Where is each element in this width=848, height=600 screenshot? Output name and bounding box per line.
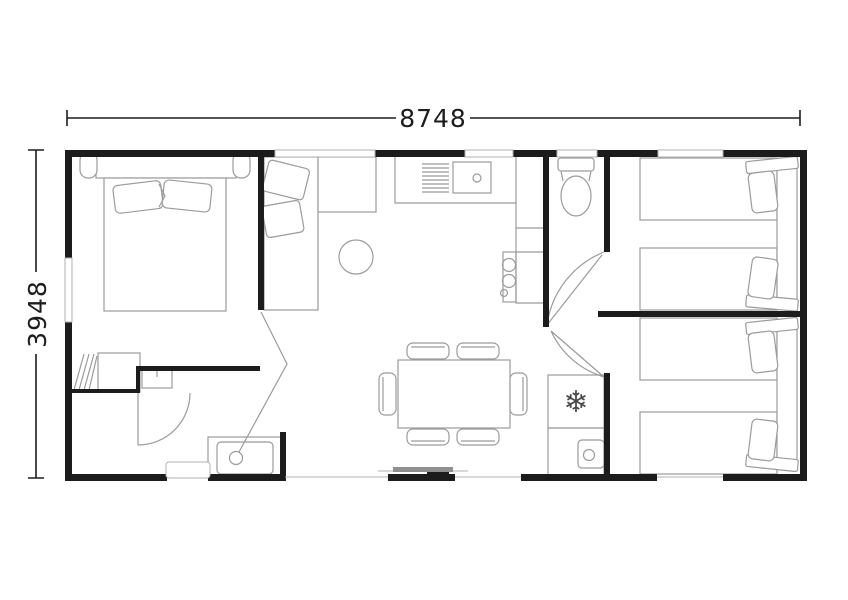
toilet-tank (558, 158, 594, 171)
wc-door (547, 252, 604, 325)
dining-set (379, 343, 527, 445)
sofa-cushion (262, 200, 305, 238)
snowflake-icon: ❄ (563, 385, 588, 420)
floor-plan-drawing: ❄ (0, 0, 848, 600)
vanity-nook (74, 353, 140, 392)
vanity-counter (98, 353, 140, 392)
wall-bathroom-north (140, 366, 260, 371)
bathroom-door-arc (138, 393, 190, 445)
wall-top (597, 150, 658, 157)
bed-side-panel (777, 325, 797, 465)
window (275, 150, 375, 157)
wall-bathroom-nook (72, 389, 140, 393)
wall-bottom (521, 474, 657, 481)
sofa-corner (262, 157, 376, 310)
chair (407, 343, 449, 359)
master-bedroom (74, 152, 250, 392)
height-dimension-label: 3948 (23, 280, 52, 348)
chair (457, 429, 499, 445)
bathroom (138, 368, 281, 478)
wall-top (375, 150, 465, 157)
kitchen-counter (395, 157, 543, 303)
fridge-column: ❄ (548, 375, 604, 478)
kitchen-sink (453, 162, 491, 193)
kitchen (395, 157, 543, 303)
bedroom-door (551, 331, 604, 377)
wall-bottom (723, 474, 807, 481)
sink-drain (473, 174, 481, 182)
pillow (748, 331, 779, 374)
sliding-door-leaf (393, 467, 453, 472)
burner (503, 259, 516, 272)
window (658, 150, 723, 157)
bed-side-panel (777, 165, 797, 305)
chair (457, 343, 499, 359)
wall-top (65, 150, 275, 157)
double-bed (80, 152, 250, 311)
shower-drain (230, 452, 243, 465)
pillow (112, 180, 163, 214)
dining-table (398, 360, 510, 428)
burner (503, 275, 516, 288)
dimension-top: 8748 (67, 104, 800, 133)
wall-wc-east (604, 157, 610, 252)
window (465, 150, 513, 157)
floor-plan-page: ❄ (0, 0, 848, 600)
burner-small (501, 290, 508, 297)
wall-left (65, 322, 72, 481)
wc-room (558, 158, 594, 216)
chair (510, 373, 527, 415)
toilet-bowl (561, 176, 591, 216)
pillow (748, 419, 779, 462)
wall-wc-west (543, 157, 549, 327)
dimension-left: 3948 (23, 150, 52, 478)
window (557, 150, 597, 157)
wall-bottom (65, 474, 167, 481)
window (65, 258, 72, 322)
water-heater-dial (584, 450, 595, 461)
chair (407, 429, 449, 445)
pillow (748, 171, 779, 214)
wall-between-bedrooms (598, 311, 807, 317)
bedroom-2 (640, 317, 798, 474)
wall-bathroom-jog (136, 366, 140, 393)
wall-master-bedroom (258, 157, 264, 310)
shower-tray-inner (217, 442, 273, 474)
master-bedroom-door (239, 312, 287, 452)
round-stool (339, 240, 373, 274)
wall-hallway-east (604, 373, 610, 481)
width-dimension-label: 8748 (399, 104, 467, 133)
bedroom-1 (640, 156, 798, 311)
pillow (162, 180, 213, 213)
wall-bathroom-east (280, 432, 286, 481)
chair (379, 373, 396, 415)
towel-lines (74, 354, 97, 390)
fridge-cabinet (548, 428, 604, 478)
pillow (747, 256, 778, 299)
sliding-door-handle (427, 472, 449, 476)
wall-bottom (208, 474, 285, 481)
wall-top (513, 150, 557, 157)
sofa-bench-top (318, 157, 376, 212)
entrance-step (166, 462, 210, 478)
wall-left (65, 150, 72, 258)
hob-grill (422, 164, 449, 192)
water-heater (578, 440, 604, 468)
wall-top (723, 150, 807, 157)
